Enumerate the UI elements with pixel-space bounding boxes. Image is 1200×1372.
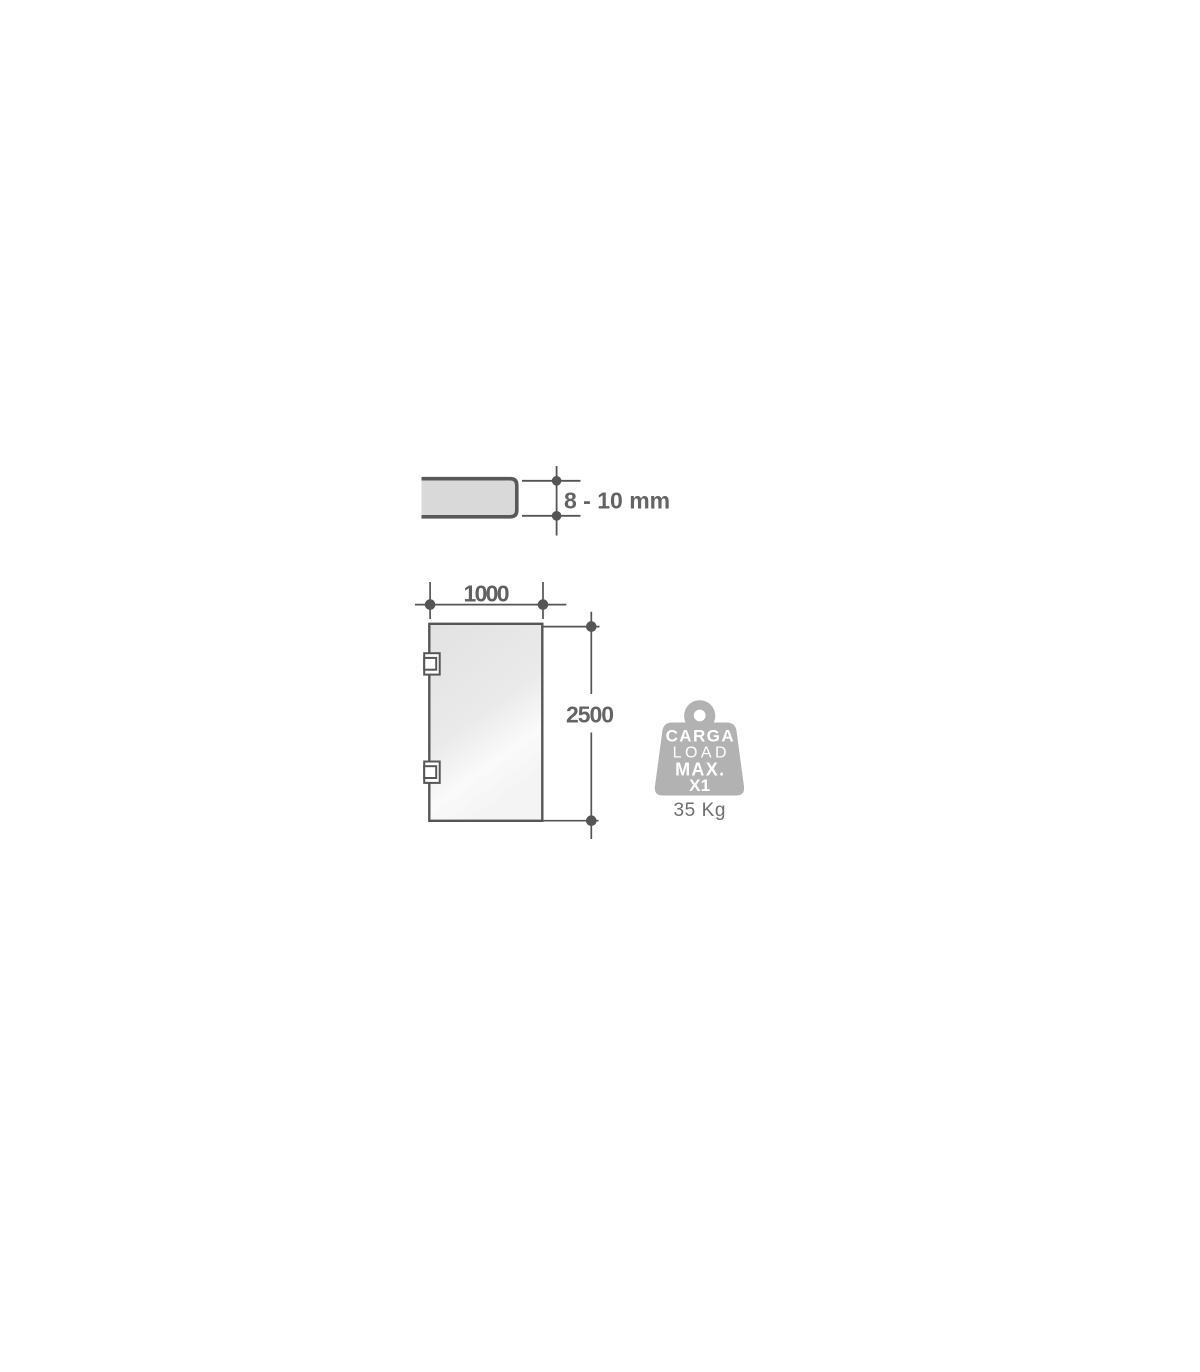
svg-text:CARGA: CARGA <box>666 726 734 745</box>
svg-text:1000: 1000 <box>464 580 510 606</box>
svg-text:X1: X1 <box>689 776 710 795</box>
svg-text:2500: 2500 <box>566 702 614 728</box>
svg-text:8 - 10 mm: 8 - 10 mm <box>564 488 670 514</box>
svg-text:35 Kg: 35 Kg <box>674 800 726 821</box>
